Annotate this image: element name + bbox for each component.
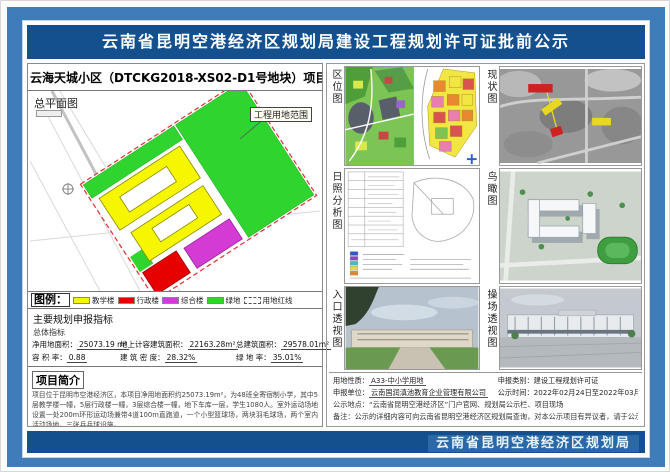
master-plan-label: 总平面图 — [34, 95, 78, 111]
birdseye-view-image — [499, 168, 642, 284]
indicator-density: 建 筑 密 度：28.32% — [120, 352, 236, 363]
green-color-swatch — [207, 297, 224, 304]
indicators-title: 主要规划申报指标 — [28, 309, 322, 326]
land-use-field: 用地性质：A33-中小学用地 — [333, 376, 498, 386]
poster-content: 云南省昆明空港经济区规划局建设工程规划许可证批前公示 云海天城小区（DTCKG2… — [22, 20, 650, 458]
sunshine-analysis-image — [344, 168, 480, 284]
project-intro: 项目简介 项目位于昆明市空港经济区，本项目净用地面积约25073.19m²，为4… — [28, 367, 322, 426]
notice-poster: 云南省昆明空港经济区规划局建设工程规划许可证批前公示 云海天城小区（DTCKG2… — [0, 0, 670, 472]
header-title: 云南省昆明空港经济区规划局建设工程规划许可证批前公示 — [27, 25, 645, 59]
intro-title: 项目简介 — [32, 371, 84, 389]
legend-item-redline: 用地红线 — [244, 295, 293, 306]
category-field: 申报类别：建设工程规划许可证 — [498, 376, 638, 386]
notice-info-block: 用地性质：A33-中小学用地 申报类别：建设工程规划许可证 申报单位：云南国润滇… — [329, 372, 642, 424]
indicator-green-ratio: 绿 地 率：35.01% — [236, 352, 331, 363]
period-field: 公示时间：2022年02月24日至2022年03月04日 — [498, 388, 638, 398]
birdseye-view-label: 鸟瞰图 — [482, 168, 497, 284]
applicant-field: 申报单位：云南国润滇池教育企业管理有限公司 — [333, 388, 498, 398]
legend-row: 图例： 教学楼 行政楼 综合楼 — [28, 291, 322, 309]
status-map-image — [499, 66, 642, 166]
complex-color-swatch — [162, 297, 179, 304]
location-map-image — [344, 66, 480, 166]
playground-perspective-label: 操场透视图 — [482, 286, 497, 370]
north-arrow-icon — [62, 183, 74, 195]
redline-swatch — [244, 297, 261, 304]
notice-info-grid: 用地性质：A33-中小学用地 申报类别：建设工程规划许可证 申报单位：云南国润滇… — [333, 376, 638, 398]
indicator-total-floor-area: 总建筑面积：29578.01m² — [236, 339, 331, 350]
main-area: 云海天城小区（DTCKG2018-XS02-D1号地块）项目 总平面图 工程用地… — [27, 63, 645, 427]
scale-bar — [36, 110, 62, 117]
master-plan-area: 总平面图 工程用地范围 — [28, 91, 322, 291]
legend-item-teaching: 教学楼 — [73, 295, 115, 306]
sunshine-analysis-label: 日照分析图 — [329, 168, 342, 284]
site-plan-panel: 云海天城小区（DTCKG2018-XS02-D1号地块）项目 总平面图 工程用地… — [27, 63, 323, 427]
indicator-far: 容 积 率：0.88 — [32, 352, 120, 363]
location-map-label: 区位图 — [329, 66, 342, 166]
indicator-above-floor-area: 地上计容建筑面积：22163.28m² — [120, 339, 236, 350]
gallery-grid: 区位图 — [329, 66, 642, 370]
indicators-table: 净用地面积：25073.19 m² 地上计容建筑面积：22163.28m² 总建… — [28, 338, 322, 367]
blue-frame: 云南省昆明空港经济区规划局建设工程规划许可证批前公示 云海天城小区（DTCKG2… — [7, 7, 665, 467]
legend-item-green: 绿地 — [207, 295, 241, 306]
note-line: 备注：公示的详细内容可向云南省昆明空港经济区规划局查询，对本公示项目有异议者，请… — [333, 412, 638, 422]
footer-bar: 云南省昆明空港经济区规划局 — [27, 431, 645, 453]
intro-paragraph-1: 项目位于昆明市空港经济区，本项目净用地面积约25073.19m²，为48班全寄宿… — [32, 391, 318, 426]
admin-color-swatch — [118, 297, 135, 304]
teaching-color-swatch — [73, 297, 90, 304]
gallery-panel: 区位图 — [326, 63, 645, 427]
project-title: 云海天城小区（DTCKG2018-XS02-D1号地块）项目 — [28, 64, 322, 91]
legend-title: 图例： — [31, 293, 70, 307]
indicator-net-land: 净用地面积：25073.19 m² — [32, 339, 120, 350]
site-boundary-label: 工程用地范围 — [250, 107, 312, 122]
legend-item-complex: 综合楼 — [162, 295, 204, 306]
entrance-perspective-label: 入口透视图 — [329, 286, 342, 370]
indicators-subtitle: 总体指标 — [28, 326, 322, 338]
venue-line: 公示地点：“云南省昆明空港经济区”门户官网、规划局公示栏、项目现场 — [333, 400, 638, 410]
footer-agency: 云南省昆明空港经济区规划局 — [428, 435, 639, 452]
playground-perspective-image — [499, 286, 642, 370]
status-map-label: 现状图 — [482, 66, 497, 166]
entrance-perspective-image — [344, 286, 480, 370]
legend-item-admin: 行政楼 — [118, 295, 160, 306]
